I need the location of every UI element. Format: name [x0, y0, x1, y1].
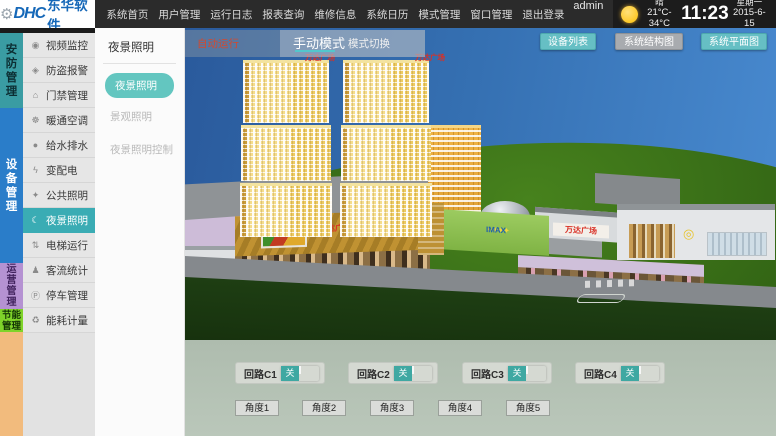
- circuit-c2-toggle[interactable]: 关: [394, 366, 432, 381]
- moon-icon: ☾: [30, 215, 41, 226]
- road-marking: [575, 294, 627, 303]
- tower-left-bottom: [240, 183, 332, 237]
- sidebar-item-energy-metering[interactable]: ♻能耗计量: [23, 308, 95, 333]
- circuit-c3-control: 回路C3 关: [462, 362, 552, 384]
- category-operations-label: 运营管理: [5, 264, 18, 308]
- storefront-windows: [707, 232, 767, 256]
- sidebar-item-label: 能耗计量: [46, 313, 88, 328]
- circuit-c2-label: 回路C2: [357, 366, 390, 381]
- circuit-c2-state: 关: [394, 366, 412, 381]
- people-icon: ♟: [30, 265, 41, 276]
- gear-icon: ⚙: [0, 5, 13, 23]
- angle-3-button[interactable]: 角度3: [370, 400, 414, 416]
- menu-item-windows[interactable]: 窗口管理: [465, 7, 517, 22]
- circuit-c1-state: 关: [281, 366, 299, 381]
- tower-right-bottom: [340, 183, 432, 237]
- submenu-panel: 夜景照明 夜景照明 景观照明 夜景照明控制: [95, 28, 185, 436]
- sidebar-item-label: 门禁管理: [46, 88, 88, 103]
- sidebar-item-label: 变配电: [46, 163, 78, 178]
- system-plan-button[interactable]: 系统平面图: [701, 33, 767, 50]
- sidebar-item-label: 电梯运行: [46, 238, 88, 253]
- sidebar-item-power-distribution[interactable]: ϟ变配电: [23, 158, 95, 183]
- menu-item-users[interactable]: 用户管理: [153, 7, 205, 22]
- store-logo-icon: ◎: [683, 226, 694, 242]
- sun-icon: [621, 6, 637, 23]
- circuit-c4-toggle[interactable]: 关: [621, 366, 659, 381]
- clock-time: 11:23: [681, 3, 729, 25]
- circuit-c4-state: 关: [621, 366, 639, 381]
- tower-right-top: [343, 60, 429, 123]
- sidebar-item-label: 给水排水: [46, 138, 88, 153]
- circuit-c3-toggle[interactable]: 关: [508, 366, 546, 381]
- brand-dhc: DHC: [13, 5, 45, 23]
- sidebar-item-passenger-flow[interactable]: ♟客流统计: [23, 258, 95, 283]
- submenu-item-landscape-lighting[interactable]: 景观照明: [95, 100, 184, 133]
- menu-item-home[interactable]: 系统首页: [101, 7, 153, 22]
- retail-strip-building: ◎: [617, 204, 775, 260]
- menu-item-calendar[interactable]: 系统日历: [361, 7, 413, 22]
- system-structure-button[interactable]: 系统结构图: [615, 33, 683, 50]
- sidebar-item-access-control[interactable]: ⌂门禁管理: [23, 83, 95, 108]
- date-label: 2015-6-15: [729, 8, 770, 30]
- top-bar: ⚙ DHC 东华软件 系统首页 用户管理 运行日志 报表查询 维修信息 系统日历…: [0, 0, 776, 28]
- imax-sign: IMAX: [486, 225, 506, 235]
- category-operations[interactable]: 运营管理: [0, 263, 23, 309]
- category-security-label: 安防管理: [5, 43, 18, 99]
- shield-icon: ◈: [30, 65, 41, 76]
- tower-left-top: [243, 60, 329, 123]
- door-lock-icon: ⌂: [30, 90, 41, 100]
- fan-icon: ☸: [30, 115, 41, 126]
- camera-icon: ◉: [30, 40, 41, 51]
- angle-1-button[interactable]: 角度1: [235, 400, 279, 416]
- angle-2-button[interactable]: 角度2: [302, 400, 346, 416]
- category-energy[interactable]: 节能管理: [0, 309, 23, 332]
- submenu-item-night-lighting[interactable]: 夜景照明: [105, 73, 174, 98]
- submenu-title: 夜景照明: [95, 28, 184, 63]
- sidebar-item-public-lighting[interactable]: ✦公共照明: [23, 183, 95, 208]
- energy-icon: ♻: [30, 315, 41, 326]
- current-user-label: admin: [569, 0, 613, 28]
- sidebar-item-elevator[interactable]: ⇅电梯运行: [23, 233, 95, 258]
- menu-item-logs[interactable]: 运行日志: [205, 7, 257, 22]
- sidebar-item-label: 停车管理: [46, 288, 88, 303]
- angle-5-button[interactable]: 角度5: [506, 400, 550, 416]
- device-list-button[interactable]: 设备列表: [540, 33, 596, 50]
- circuit-c1-label: 回路C1: [244, 366, 277, 381]
- circuit-c1-toggle[interactable]: 关: [281, 366, 319, 381]
- category-equipment-label: 设备管理: [5, 158, 18, 214]
- submenu-divider: [103, 63, 176, 64]
- circuit-c4-control: 回路C4 关: [575, 362, 665, 384]
- category-energy-label: 节能管理: [1, 310, 22, 332]
- sidebar-item-burglar-alarm[interactable]: ◈防盗报警: [23, 58, 95, 83]
- lightning-icon: ϟ: [30, 165, 41, 175]
- circuit-c3-label: 回路C3: [471, 366, 504, 381]
- category-equipment[interactable]: 设备管理: [0, 108, 23, 263]
- sidebar-item-night-lighting[interactable]: ☾夜景照明: [23, 208, 95, 233]
- manual-mode-underline: [295, 50, 335, 52]
- temperature-range: 21°C-34°C: [638, 8, 682, 30]
- circuit-c4-label: 回路C4: [584, 366, 617, 381]
- sidebar-item-label: 夜景照明: [46, 213, 88, 228]
- foreground-plaza: [185, 340, 776, 436]
- menu-item-modes[interactable]: 模式管理: [413, 7, 465, 22]
- sidebar-item-water-supply[interactable]: ●给水排水: [23, 133, 95, 158]
- circuit-c1-control: 回路C1 关: [235, 362, 325, 384]
- category-security[interactable]: 安防管理: [0, 33, 23, 108]
- mode-switch-button[interactable]: 模式切换: [348, 36, 390, 51]
- sidebar-item-label: 客流统计: [46, 263, 88, 278]
- menu-item-reports[interactable]: 报表查询: [257, 7, 309, 22]
- auto-run-button[interactable]: 自动运行: [197, 36, 239, 51]
- main-menu: 系统首页 用户管理 运行日志 报表查询 维修信息 系统日历 模式管理 窗口管理 …: [95, 0, 569, 28]
- menu-item-logout[interactable]: 退出登录: [517, 7, 569, 22]
- angle-4-button[interactable]: 角度4: [438, 400, 482, 416]
- tower-left-middle: [241, 125, 331, 181]
- bulb-icon: ✦: [30, 190, 41, 201]
- sidebar-item-parking[interactable]: Ⓟ停车管理: [23, 283, 95, 308]
- sidebar-item-video-surveillance[interactable]: ◉视频监控: [23, 33, 95, 58]
- sidebar-item-label: 暖通空调: [46, 113, 88, 128]
- category-filler: [0, 332, 23, 436]
- sidebar: ◉视频监控 ◈防盗报警 ⌂门禁管理 ☸暖通空调 ●给水排水 ϟ变配电 ✦公共照明…: [23, 28, 95, 436]
- tower-right-middle: [341, 125, 431, 181]
- dhc-logo: ⚙ DHC 东华软件: [0, 0, 95, 28]
- category-strip: 安防管理 设备管理 运营管理 节能管理: [0, 28, 23, 436]
- wood-facade: [629, 224, 675, 258]
- bms-application-window: ⚙ DHC 东华软件 系统首页 用户管理 运行日志 报表查询 维修信息 系统日历…: [0, 0, 776, 436]
- sidebar-item-label: 防盗报警: [46, 63, 88, 78]
- sidebar-item-label: 公共照明: [46, 188, 88, 203]
- circuit-c3-state: 关: [508, 366, 526, 381]
- menu-item-maintenance[interactable]: 维修信息: [309, 7, 361, 22]
- 3d-mall-scene: ◎ 万达广场 ✦✦✦✦IMAX 万达广场 万达广场 万达: [185, 28, 776, 436]
- circuit-c2-control: 回路C2 关: [348, 362, 438, 384]
- water-drop-icon: ●: [30, 140, 41, 150]
- sidebar-item-label: 视频监控: [46, 38, 88, 53]
- sidebar-item-hvac[interactable]: ☸暖通空调: [23, 108, 95, 133]
- elevator-icon: ⇅: [30, 240, 41, 251]
- parking-icon: Ⓟ: [30, 289, 41, 302]
- weather-time-widget: 晴 21°C-34°C 11:23 星期一 2015-6-15: [613, 0, 776, 28]
- submenu-item-night-lighting-control[interactable]: 夜景照明控制: [95, 133, 184, 166]
